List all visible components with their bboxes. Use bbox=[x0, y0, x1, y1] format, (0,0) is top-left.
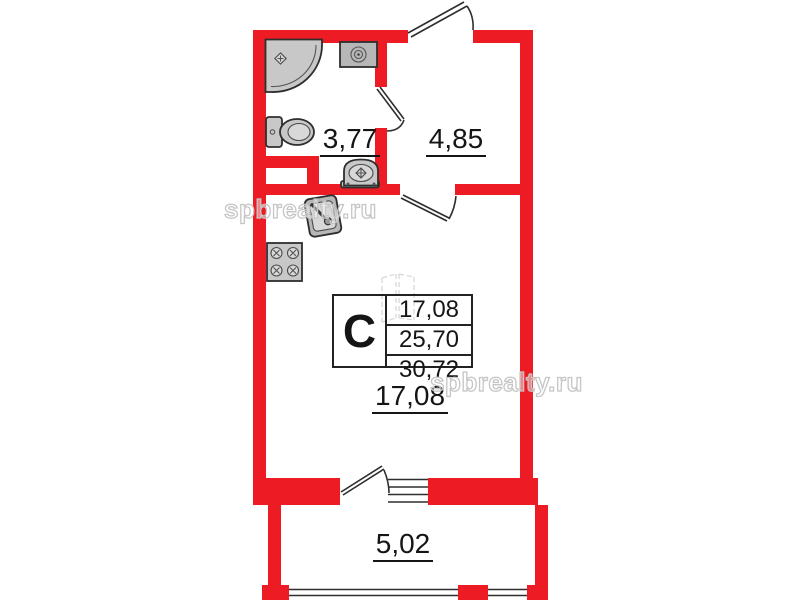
wall-balcony-block-right bbox=[428, 478, 538, 505]
balcony-pier-left bbox=[262, 585, 289, 600]
wall-right bbox=[520, 30, 533, 478]
area-table: С 17,08 25,70 30,72 bbox=[332, 294, 473, 368]
balcony-window bbox=[388, 480, 428, 503]
studio-type-label: С bbox=[334, 296, 387, 366]
area-table-values: 17,08 25,70 30,72 bbox=[387, 296, 471, 366]
watermark: spbrealty.ru bbox=[224, 196, 377, 222]
entry-door bbox=[408, 2, 473, 37]
shower bbox=[266, 40, 323, 93]
living-room-door bbox=[401, 195, 456, 221]
bathroom-sink bbox=[341, 160, 379, 188]
wall-bath-connector bbox=[307, 156, 319, 184]
balcony-pier-middle bbox=[458, 585, 488, 600]
hallway-area-label: 4,85 bbox=[421, 125, 491, 157]
floor-plan: 3,77 4,85 17,08 5,02 С 17,08 25,70 30,72… bbox=[0, 0, 800, 600]
balcony-pier-right bbox=[527, 585, 548, 600]
living-area-value: 17,08 bbox=[387, 296, 471, 324]
balcony-door bbox=[341, 466, 389, 495]
watermark: spbrealty.ru bbox=[430, 369, 583, 395]
wall-balcony-block-left bbox=[253, 478, 340, 505]
wall-dividing-right bbox=[455, 184, 533, 195]
wall-left bbox=[253, 30, 266, 480]
wall-balcony-left bbox=[268, 505, 281, 587]
washing-machine bbox=[340, 42, 377, 67]
floor-area-value: 25,70 bbox=[387, 324, 471, 354]
bathroom-area-label: 3,77 bbox=[315, 125, 385, 157]
stove bbox=[267, 243, 302, 281]
wall-balcony-right bbox=[535, 505, 548, 587]
toilet bbox=[266, 117, 314, 147]
balcony-railing bbox=[288, 590, 527, 596]
balcony-area-label: 5,02 bbox=[368, 530, 438, 562]
